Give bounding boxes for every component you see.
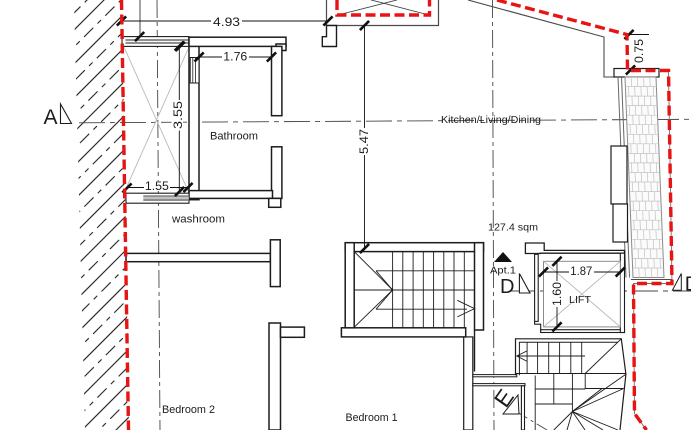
svg-text:3.55: 3.55	[171, 101, 185, 129]
svg-text:LIFT: LIFT	[569, 294, 592, 306]
svg-text:1.55: 1.55	[145, 179, 169, 193]
svg-text:Bedroom 2: Bedroom 2	[162, 404, 215, 416]
svg-text:D: D	[685, 274, 691, 296]
svg-text:4.93: 4.93	[213, 15, 240, 29]
svg-text:Kitchen/Living/Dining: Kitchen/Living/Dining	[441, 114, 541, 126]
svg-text:1.60: 1.60	[552, 282, 564, 306]
svg-text:0.75: 0.75	[634, 39, 646, 63]
svg-text:D: D	[500, 276, 514, 298]
svg-text:Apt.1: Apt.1	[490, 266, 516, 277]
svg-text:5.47: 5.47	[357, 129, 371, 154]
svg-text:127.4 sqm: 127.4 sqm	[488, 222, 538, 234]
svg-text:Bathroom: Bathroom	[210, 131, 258, 143]
svg-text:Bedroom 1: Bedroom 1	[346, 412, 398, 424]
svg-text:1.76: 1.76	[223, 50, 247, 64]
svg-text:A: A	[44, 106, 58, 129]
svg-text:1.87: 1.87	[570, 266, 592, 278]
svg-text:washroom: washroom	[171, 214, 225, 226]
